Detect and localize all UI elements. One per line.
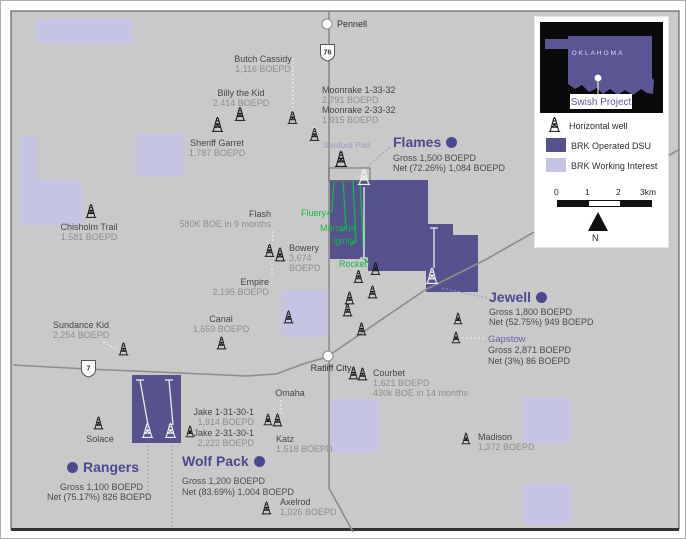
well-label-solace: Solace bbox=[52, 434, 148, 444]
town-label-pennell: Pennell bbox=[337, 19, 367, 29]
well-label-empire: Empire2,195 BOEPD bbox=[173, 277, 269, 297]
horizontal-well-icon bbox=[548, 117, 561, 132]
well-label-flash: Flash580K BOE in 9 months bbox=[175, 209, 271, 229]
well-label-moonrake: Moonrake 1-33-322,791 BOEPD Moonrake 2-3… bbox=[322, 85, 396, 125]
scale-bar bbox=[557, 200, 652, 207]
well-label-katz: Katz1,518 BOEPD bbox=[276, 434, 333, 454]
unit-net-jewell: Net (52.75%) 949 BOEPD bbox=[489, 317, 594, 327]
legend-panel: OKLAHOMA Swish Project Horizontal well B… bbox=[534, 16, 669, 248]
unit-heading-wolf-pack: Wolf Pack bbox=[182, 454, 265, 469]
well-label-sanford-pad: Sanford Pad bbox=[323, 140, 370, 150]
green-well-label-iginla: Iginla bbox=[333, 236, 355, 246]
project-label: Swish Project bbox=[571, 97, 632, 108]
svg-text:76: 76 bbox=[323, 48, 331, 57]
unit-gross-gapstow: Gross 2,871 BOEPD bbox=[488, 345, 571, 355]
unit-gross-wolf-pack: Gross 1,200 BOEPD bbox=[182, 476, 265, 486]
well-label-omaha: Omaha bbox=[242, 388, 338, 398]
unit-stats-rangers: Gross 1,100 BOEPDNet (75.17%) 826 BOEPD bbox=[47, 482, 143, 502]
legend-item-horizontal-well: Horizontal well bbox=[569, 121, 628, 131]
unit-bullet bbox=[446, 137, 457, 148]
legend-swatch-working-interest bbox=[546, 158, 566, 172]
highway-shield-7: 7 bbox=[82, 361, 96, 378]
well-label-jake-2: Jake 2-31-30-12,222 BOEPD bbox=[158, 428, 254, 448]
well-label-madison: Madison1,372 BOEPD bbox=[478, 432, 535, 452]
inset-state-label: OKLAHOMA bbox=[572, 50, 625, 57]
unit-heading-gapstow: Gapstow bbox=[488, 334, 526, 345]
green-well-label-maroons: Maroons bbox=[320, 223, 355, 233]
legend-item-working-interest: BRK Working Interest bbox=[571, 161, 657, 171]
scalebar-tick-1: 1 bbox=[585, 187, 590, 197]
well-label-butch-cassidy: Butch Cassidy1,116 BOEPD bbox=[215, 54, 311, 74]
scalebar-tick-3: 3km bbox=[640, 187, 656, 197]
green-well-label-fluery: Fluery bbox=[278, 208, 326, 218]
unit-net-wolf-pack: Net (83.69%) 1,004 BOEPD bbox=[182, 487, 294, 497]
well-label-billy-the-kid: Billy the Kid2,414 BOEPD bbox=[193, 88, 289, 108]
unit-bullet bbox=[67, 462, 78, 473]
unit-heading-flames: Flames bbox=[393, 135, 457, 150]
unit-net-flames: Net (72.26%) 1,084 BOEPD bbox=[393, 163, 505, 173]
well-label-jake-1: Jake 1-31-30-11,914 BOEPD bbox=[158, 407, 254, 427]
legend-swatch-operated-dsu bbox=[546, 138, 566, 152]
well-label-sheriff-garret: Sheriff Garret1,787 BOEPD bbox=[169, 138, 265, 158]
legend-item-operated-dsu: BRK Operated DSU bbox=[571, 141, 651, 151]
well-label-chisholm-trail: Chisholm Trail1,581 BOEPD bbox=[41, 222, 137, 242]
well-label-axelrod: Axelrod1,026 BOEPD bbox=[280, 497, 337, 517]
unit-net-gapstow: Net (3%) 86 BOEPD bbox=[488, 356, 570, 366]
project-marker-dot bbox=[595, 75, 602, 82]
inset-map: OKLAHOMA Swish Project bbox=[540, 22, 663, 113]
well-label-courbet: Courbet1,621 BOEPD430k BOE in 14 months bbox=[373, 368, 468, 398]
unit-gross-flames: Gross 1,500 BOEPD bbox=[393, 153, 476, 163]
unit-bullet bbox=[536, 292, 547, 303]
highway-shield-76: 76 bbox=[321, 45, 335, 62]
north-label: N bbox=[592, 233, 599, 243]
unit-bullet bbox=[254, 456, 265, 467]
unit-gross-jewell: Gross 1,800 BOEPD bbox=[489, 307, 572, 317]
unit-heading-jewell: Jewell bbox=[489, 290, 547, 305]
unit-heading-rangers: Rangers bbox=[67, 460, 139, 475]
well-label-sundance-kid: Sundance Kid2,254 BOEPD bbox=[33, 320, 129, 340]
well-label-canal: Canal1,659 BOEPD bbox=[173, 314, 269, 334]
scalebar-tick-2: 2 bbox=[616, 187, 621, 197]
scalebar-tick-0: 0 bbox=[554, 187, 559, 197]
well-label-bowery: Bowery3,674BOEPD bbox=[289, 243, 321, 273]
project-map: 76 7 bbox=[0, 0, 686, 539]
green-well-label-rocket: Rocket bbox=[339, 259, 367, 269]
town-label-ratliff-city: Ratliff City bbox=[283, 363, 379, 373]
north-arrow-icon bbox=[588, 212, 608, 231]
svg-text:7: 7 bbox=[86, 364, 90, 373]
